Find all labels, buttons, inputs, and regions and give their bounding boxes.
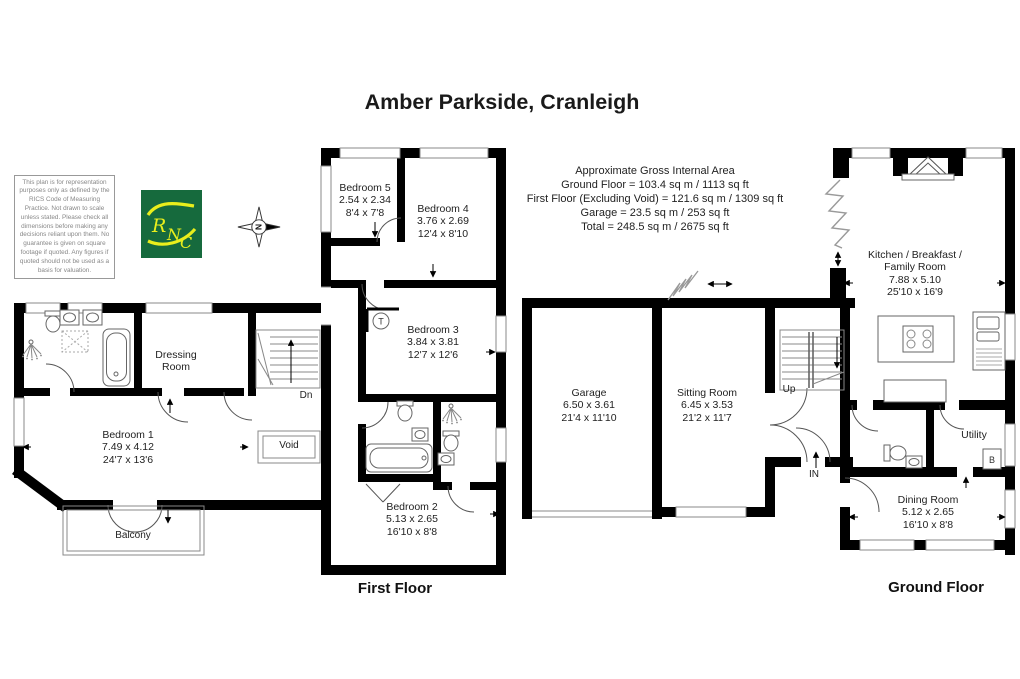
room-name: Bedroom 5 — [339, 182, 391, 194]
floorplan-page: T — [0, 0, 1020, 679]
window — [926, 540, 994, 550]
svg-text:N: N — [254, 224, 264, 230]
room-dim-metric: 7.88 x 5.10 — [856, 274, 974, 286]
shower-icon — [442, 404, 462, 424]
stairs-icon — [780, 330, 844, 390]
room-name: Bedroom 2 — [386, 501, 438, 513]
area-line: Garage = 23.5 sq m / 253 sq ft — [527, 206, 783, 220]
shower-tray-icon — [62, 331, 88, 352]
page-title: Amber Parkside, Cranleigh — [365, 90, 640, 115]
kitchen-island — [878, 316, 954, 362]
sink-icon — [412, 428, 428, 441]
shower-icon — [22, 340, 42, 360]
room-label-garage: Garage 6.50 x 3.61 21'4 x 11'10 — [561, 387, 616, 424]
door-arc — [770, 425, 807, 462]
stairs-icon — [256, 330, 320, 388]
window — [496, 428, 506, 462]
void-label: Void — [279, 440, 298, 451]
room-dim-imperial: 24'7 x 13'6 — [102, 454, 154, 466]
toilet-icon — [443, 431, 459, 451]
room-name: Bedroom 4 — [417, 203, 469, 215]
utility-label: Utility — [961, 429, 987, 441]
area-summary: Approximate Gross Internal Area Ground F… — [527, 164, 783, 234]
room-dim-metric: 7.49 x 4.12 — [102, 441, 154, 453]
room-dim-imperial: 25'10 x 16'9 — [856, 286, 974, 298]
room-label-dressing: Dressing Room — [145, 349, 207, 374]
room-label-bedroom5: Bedroom 5 2.54 x 2.34 8'4 x 7'8 — [339, 182, 391, 219]
room-dim-imperial: 16'10 x 8'8 — [898, 519, 959, 531]
room-name: Garage — [561, 387, 616, 399]
rnc-logo: R N C — [141, 190, 202, 258]
window — [966, 148, 1002, 158]
svg-text:R: R — [151, 215, 166, 237]
window — [1005, 490, 1015, 528]
window — [676, 507, 746, 517]
window — [860, 540, 914, 550]
door-arc — [46, 364, 74, 392]
room-dim-metric: 5.13 x 2.65 — [386, 513, 438, 525]
room-name: Bedroom 3 — [407, 324, 459, 336]
boiler-icon: B — [983, 449, 1001, 469]
room-label-dining: Dining Room 5.12 x 2.65 16'10 x 8'8 — [898, 494, 959, 531]
room-dim-imperial: 21'4 x 11'10 — [561, 412, 616, 424]
ground-floor-caption: Ground Floor — [888, 579, 984, 596]
room-name: Bedroom 1 — [102, 429, 154, 441]
room-label-bedroom2: Bedroom 2 5.13 x 2.65 16'10 x 8'8 — [386, 501, 438, 538]
sink-counter — [973, 312, 1005, 370]
room-label-bedroom1: Bedroom 1 7.49 x 4.12 24'7 x 13'6 — [102, 429, 154, 466]
room-dim-imperial: 21'2 x 11'7 — [677, 412, 737, 424]
room-dim-metric: 3.76 x 2.69 — [417, 215, 469, 227]
area-line: Ground Floor = 103.4 sq m / 1113 sq ft — [527, 178, 783, 192]
stairs-up-label: Up — [783, 384, 796, 395]
room-dim-imperial: 12'7 x 12'6 — [407, 349, 459, 361]
door-arc — [796, 428, 830, 462]
bathtub-icon — [103, 329, 130, 386]
room-dim-metric: 3.84 x 3.81 — [407, 336, 459, 348]
door-arc — [845, 478, 879, 512]
window — [340, 148, 400, 158]
room-label-sitting: Sitting Room 6.45 x 3.53 21'2 x 11'7 — [677, 387, 737, 424]
window — [1005, 314, 1015, 360]
svg-text:C: C — [180, 233, 192, 252]
stairs-down-label: Dn — [300, 390, 313, 401]
toilet-icon — [397, 401, 413, 421]
area-line: First Floor (Excluding Void) = 121.6 sq … — [527, 192, 783, 206]
svg-text:B: B — [989, 455, 995, 465]
window — [420, 148, 488, 158]
room-dim-metric: 6.50 x 3.61 — [561, 399, 616, 411]
window — [852, 148, 890, 158]
bathtub-icon — [366, 444, 432, 472]
entrance-label: IN — [809, 469, 819, 480]
toilet-icon — [45, 311, 61, 332]
tank-icon: T — [367, 309, 399, 332]
garage-door — [532, 508, 652, 520]
area-line: Approximate Gross Internal Area — [527, 164, 783, 178]
svg-text:T: T — [378, 317, 384, 327]
sink-icon — [438, 453, 454, 465]
sink-icon — [906, 456, 922, 468]
room-dim-metric: 2.54 x 2.34 — [339, 194, 391, 206]
room-label-bedroom4: Bedroom 4 3.76 x 2.69 12'4 x 8'10 — [417, 203, 469, 240]
door-arc — [158, 392, 188, 422]
room-dim-imperial: 12'4 x 8'10 — [417, 228, 469, 240]
first-floor-caption: First Floor — [358, 580, 432, 597]
window — [496, 316, 506, 352]
window — [14, 398, 24, 446]
room-name: Sitting Room — [677, 387, 737, 399]
room-name: Kitchen / Breakfast / Family Room — [856, 249, 974, 274]
room-dim-imperial: 8'4 x 7'8 — [339, 207, 391, 219]
window — [146, 303, 212, 313]
area-line: Total = 248.5 sq m / 2675 sq ft — [527, 220, 783, 234]
disclaimer-box: This plan is for representation purposes… — [14, 175, 115, 279]
bifold-doors — [826, 180, 849, 248]
disclaimer-text: This plan is for representation purposes… — [19, 179, 110, 276]
door-arc — [224, 392, 252, 420]
room-dim-imperial: 16'10 x 8'8 — [386, 526, 438, 538]
room-dim-metric: 6.45 x 3.53 — [677, 399, 737, 411]
balcony-label: Balcony — [115, 530, 151, 541]
window — [321, 166, 331, 232]
room-dim-metric: 5.12 x 2.65 — [898, 506, 959, 518]
zigzag-break — [668, 271, 698, 300]
double-door — [366, 484, 400, 502]
room-name: Dining Room — [898, 494, 959, 506]
room-label-kitchen: Kitchen / Breakfast / Family Room 7.88 x… — [856, 249, 974, 299]
window — [1005, 424, 1015, 466]
toilet-icon — [884, 445, 906, 461]
compass-icon: N — [236, 204, 282, 250]
room-name: Dressing Room — [145, 349, 207, 374]
room-label-bedroom3: Bedroom 3 3.84 x 3.81 12'7 x 12'6 — [407, 324, 459, 361]
counter — [884, 380, 946, 402]
